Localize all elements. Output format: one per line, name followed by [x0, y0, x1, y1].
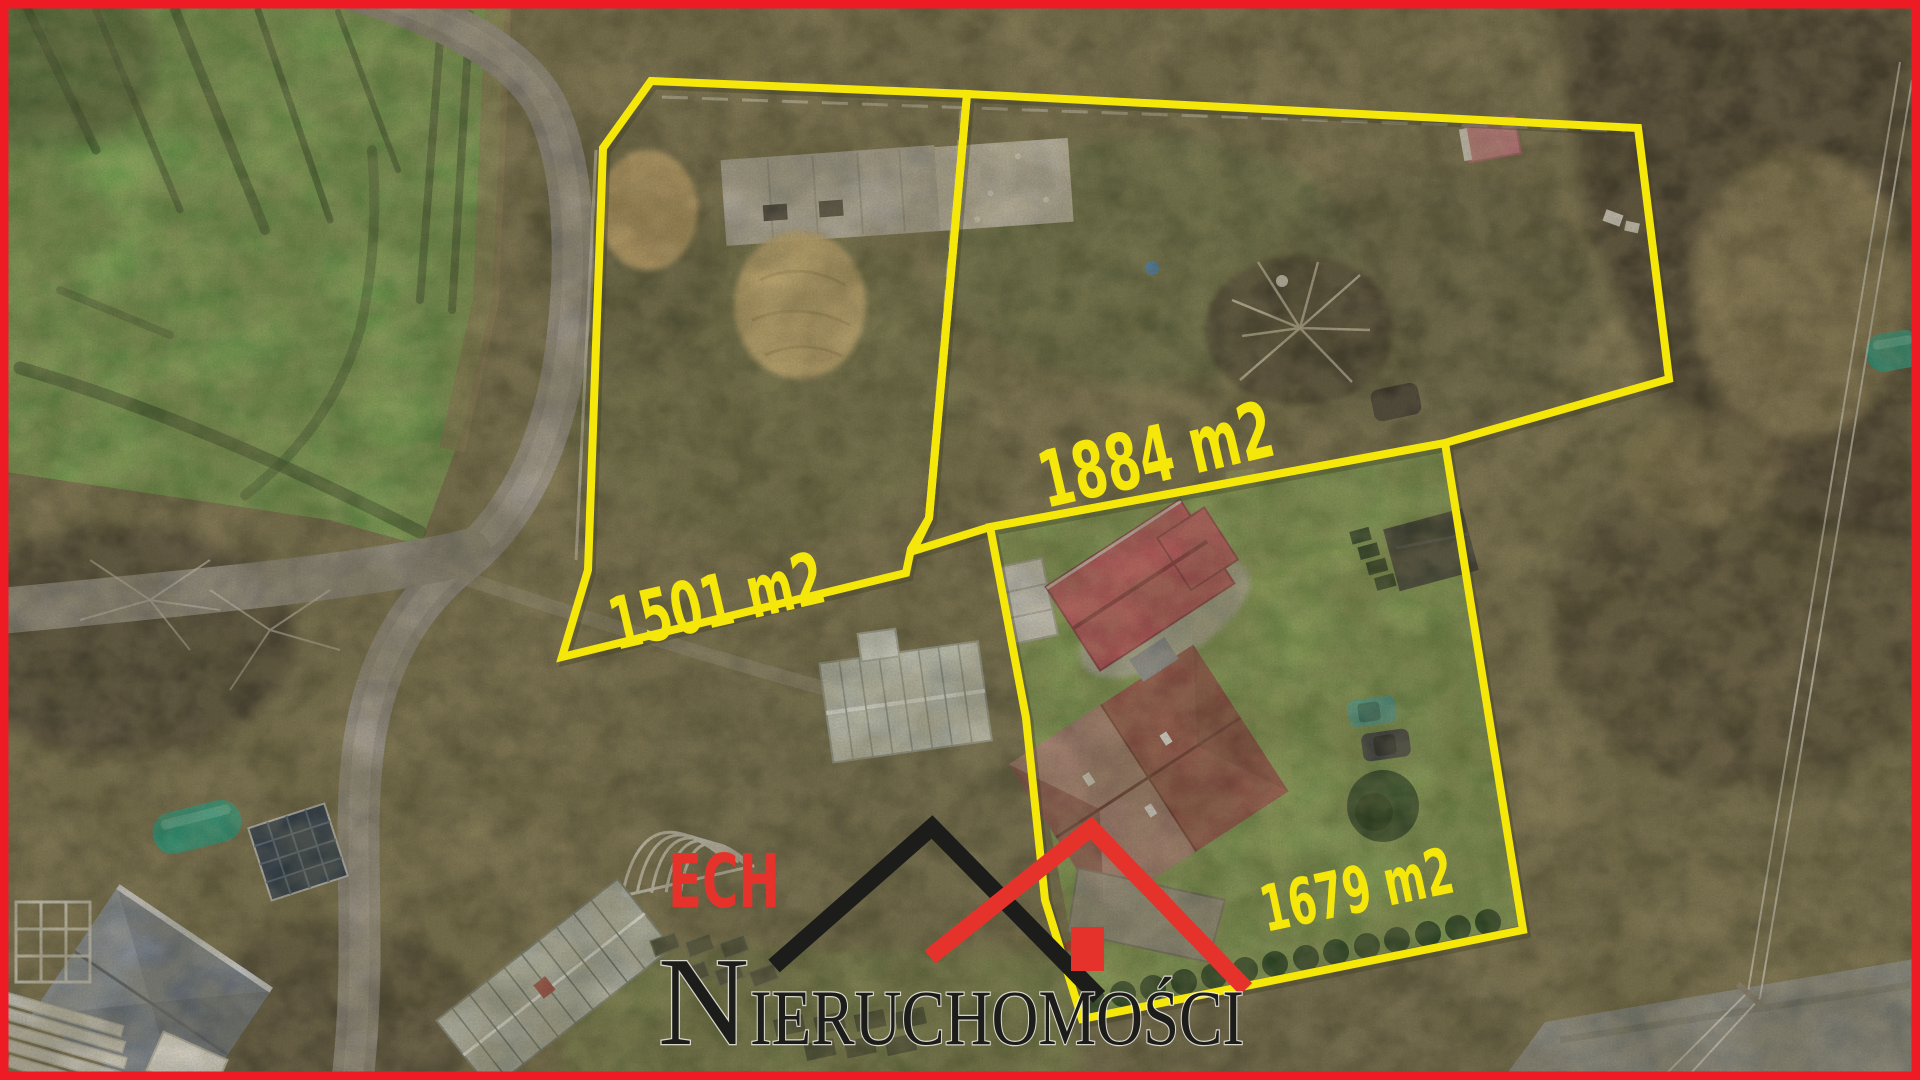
logo-wordmark-initial: N	[658, 933, 749, 1072]
logo-brand-text: ECH	[668, 839, 780, 925]
logo-chimney-icon	[1071, 927, 1104, 971]
aerial-listing-image: 1501 m2 1884 m2 1679 m2 ECH N IERUCHOMOŚ…	[0, 0, 1920, 1080]
logo-wordmark-rest: IERUCHOMOŚCI	[750, 974, 1244, 1061]
